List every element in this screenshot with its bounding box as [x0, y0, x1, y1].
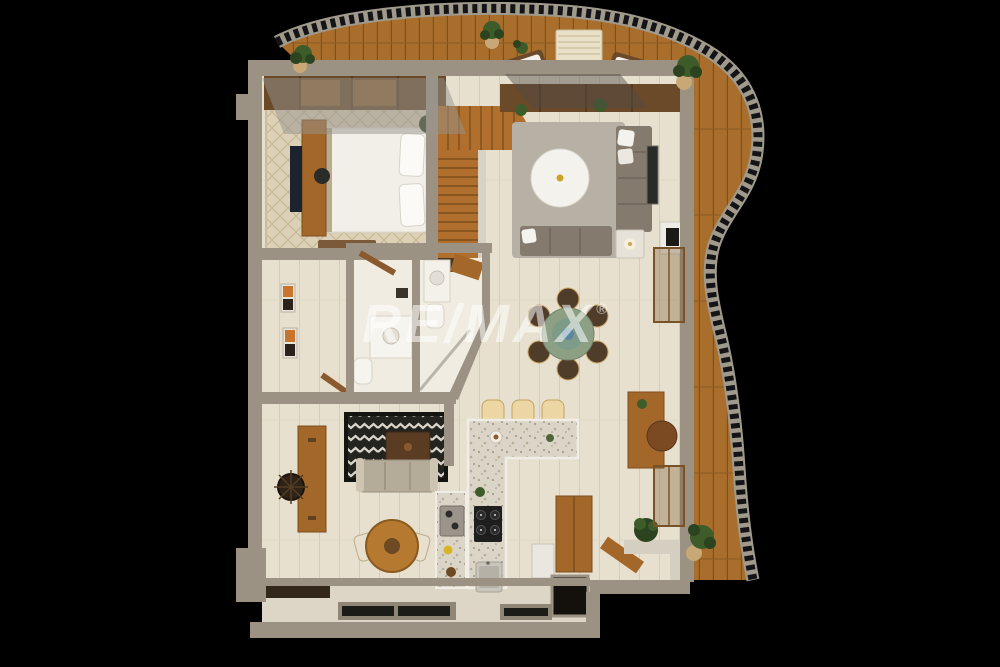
console-plant-icon: [637, 399, 647, 409]
desk-chair: [314, 168, 330, 184]
wall-art-frame: [647, 146, 658, 204]
bathroom-top-wall: [346, 243, 492, 253]
bottom-right-wall: [590, 580, 690, 594]
bedroom-wall-tv: [290, 146, 302, 212]
bottom-exterior-wall: [250, 622, 598, 638]
sink-basin: [430, 271, 444, 285]
watermark-brand-text: RE/MAX: [362, 294, 596, 354]
shelf-plant-icon: [515, 104, 527, 116]
lemon-bowl: [444, 546, 453, 555]
small-cooktop: [440, 506, 464, 536]
balcony-divider-wall: [262, 578, 590, 586]
hall-art-frame: [283, 328, 297, 358]
balcony-sliding-door: [654, 248, 684, 322]
left-exterior-wall: [248, 60, 262, 568]
balcony-sliding-door: [654, 466, 684, 526]
registered-trademark-icon: ®: [596, 301, 607, 318]
kitchen-sink: [476, 561, 502, 592]
remax-watermark: RE/MAX®: [362, 297, 607, 351]
sofa-pillow: [521, 228, 537, 244]
bathroom-left-wall: [346, 243, 354, 400]
coffee-table-decor: [557, 175, 564, 182]
den-window-sill: [266, 586, 330, 598]
deck-slatted-table: [556, 30, 602, 62]
herb-plant-icon: [475, 487, 485, 497]
sofa-pillow: [617, 148, 633, 164]
bottom-step-wall: [586, 592, 600, 638]
den-sofa: [356, 458, 438, 492]
bed-pillow: [399, 183, 425, 226]
balcony-floor-vent: [500, 604, 552, 620]
bedroom-glass-canopy: [262, 78, 466, 134]
floorplan-scene: RE/MAX®: [0, 0, 1000, 667]
bed-pillow: [399, 133, 425, 176]
den-kitchen-wall: [444, 404, 454, 466]
gas-stove: [474, 506, 502, 542]
side-table-with-lamp: [616, 230, 644, 258]
sofa-pillow: [617, 129, 635, 147]
den-top-wall: [254, 392, 456, 404]
counter-plate-food: [494, 435, 499, 440]
left-wall-pier: [236, 94, 250, 120]
pastry-plate: [446, 567, 456, 577]
round-side-table: [647, 421, 677, 451]
round-wall-mirror: [274, 470, 308, 504]
counter-greens: [546, 434, 554, 442]
stair-right-wall: [478, 150, 486, 258]
toilet: [354, 358, 372, 384]
table-decor: [404, 443, 412, 451]
bottom-left-pier: [236, 548, 266, 602]
dining-chair: [557, 358, 579, 380]
top-exterior-wall: [254, 60, 694, 76]
balcony-floor-vent: [338, 602, 456, 620]
hall-art-frame: [281, 284, 295, 312]
table-centerpiece: [384, 538, 400, 554]
